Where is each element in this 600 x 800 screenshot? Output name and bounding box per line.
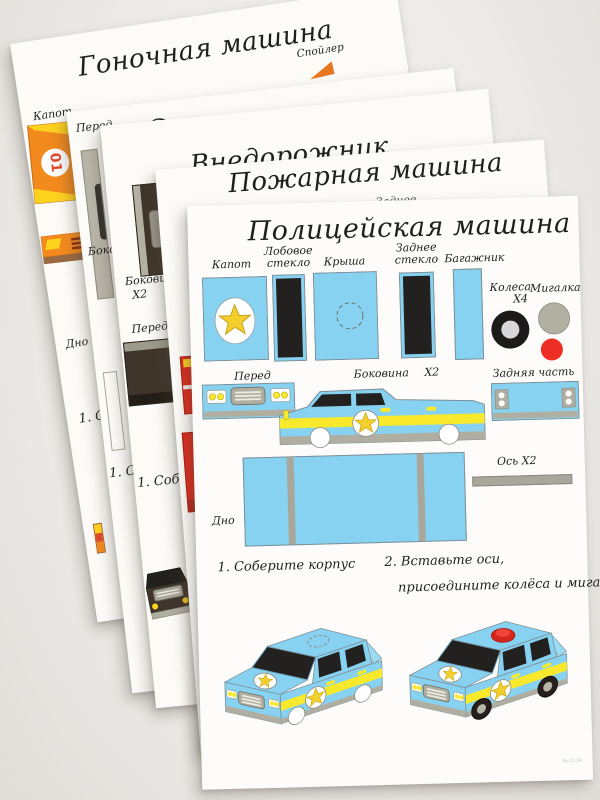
police-rear-window-part xyxy=(399,272,436,359)
police-hood-label: Капот xyxy=(201,258,261,272)
police-bottom-part xyxy=(243,452,467,547)
racing-bottom-label: Дно xyxy=(65,336,89,352)
police-front-label: Перед xyxy=(216,369,288,383)
sheet-police-car: Полицейская машина Капот Лобовое стекло … xyxy=(187,196,593,790)
police-windshield-part xyxy=(272,274,307,362)
ambulance-cut-outline xyxy=(103,371,126,451)
police-step1: 1. Соберите корпус xyxy=(217,558,355,576)
police-beacon-gray-part xyxy=(538,302,571,335)
assembled-car-step2 xyxy=(400,606,583,729)
police-beacon-red-part xyxy=(541,338,564,361)
racing-spoiler-part xyxy=(307,61,334,79)
suv-side-qty: Х2 xyxy=(132,288,148,302)
police-step2-line2: присоедините колёса и мигалку xyxy=(398,576,600,596)
police-hood-part xyxy=(202,276,269,362)
police-beacon-label: Мигалка xyxy=(527,282,583,296)
police-rear-part xyxy=(491,381,580,421)
suv-bottom-label: Дно xyxy=(137,393,161,407)
police-side-part xyxy=(277,382,489,452)
suv-front-label: Перед xyxy=(131,320,169,336)
police-side-label: Боковина Х2 xyxy=(339,366,453,381)
police-trunk-part xyxy=(453,268,484,360)
police-wheel-part xyxy=(491,310,530,349)
police-trunk-label: Багажник xyxy=(440,252,508,266)
police-axle-label: Ось Х2 xyxy=(486,455,548,469)
police-roof-label: Крыша xyxy=(312,255,376,269)
assembled-car-step1 xyxy=(215,613,398,736)
police-rear-label: Задняя часть xyxy=(484,366,582,381)
police-step2-line1: 2. Вставьте оси, xyxy=(384,553,504,571)
police-windshield-label: Лобовое стекло xyxy=(260,245,317,271)
police-axle-part xyxy=(472,474,572,487)
police-rear-window-label: Заднее стекло xyxy=(388,241,445,267)
police-footer-code: № 2134 xyxy=(563,758,583,765)
racing-hood-number: 01 xyxy=(46,152,64,173)
police-bottom-label: Дно xyxy=(203,515,243,528)
police-roof-part xyxy=(313,271,379,361)
racing-small-part xyxy=(93,523,106,554)
